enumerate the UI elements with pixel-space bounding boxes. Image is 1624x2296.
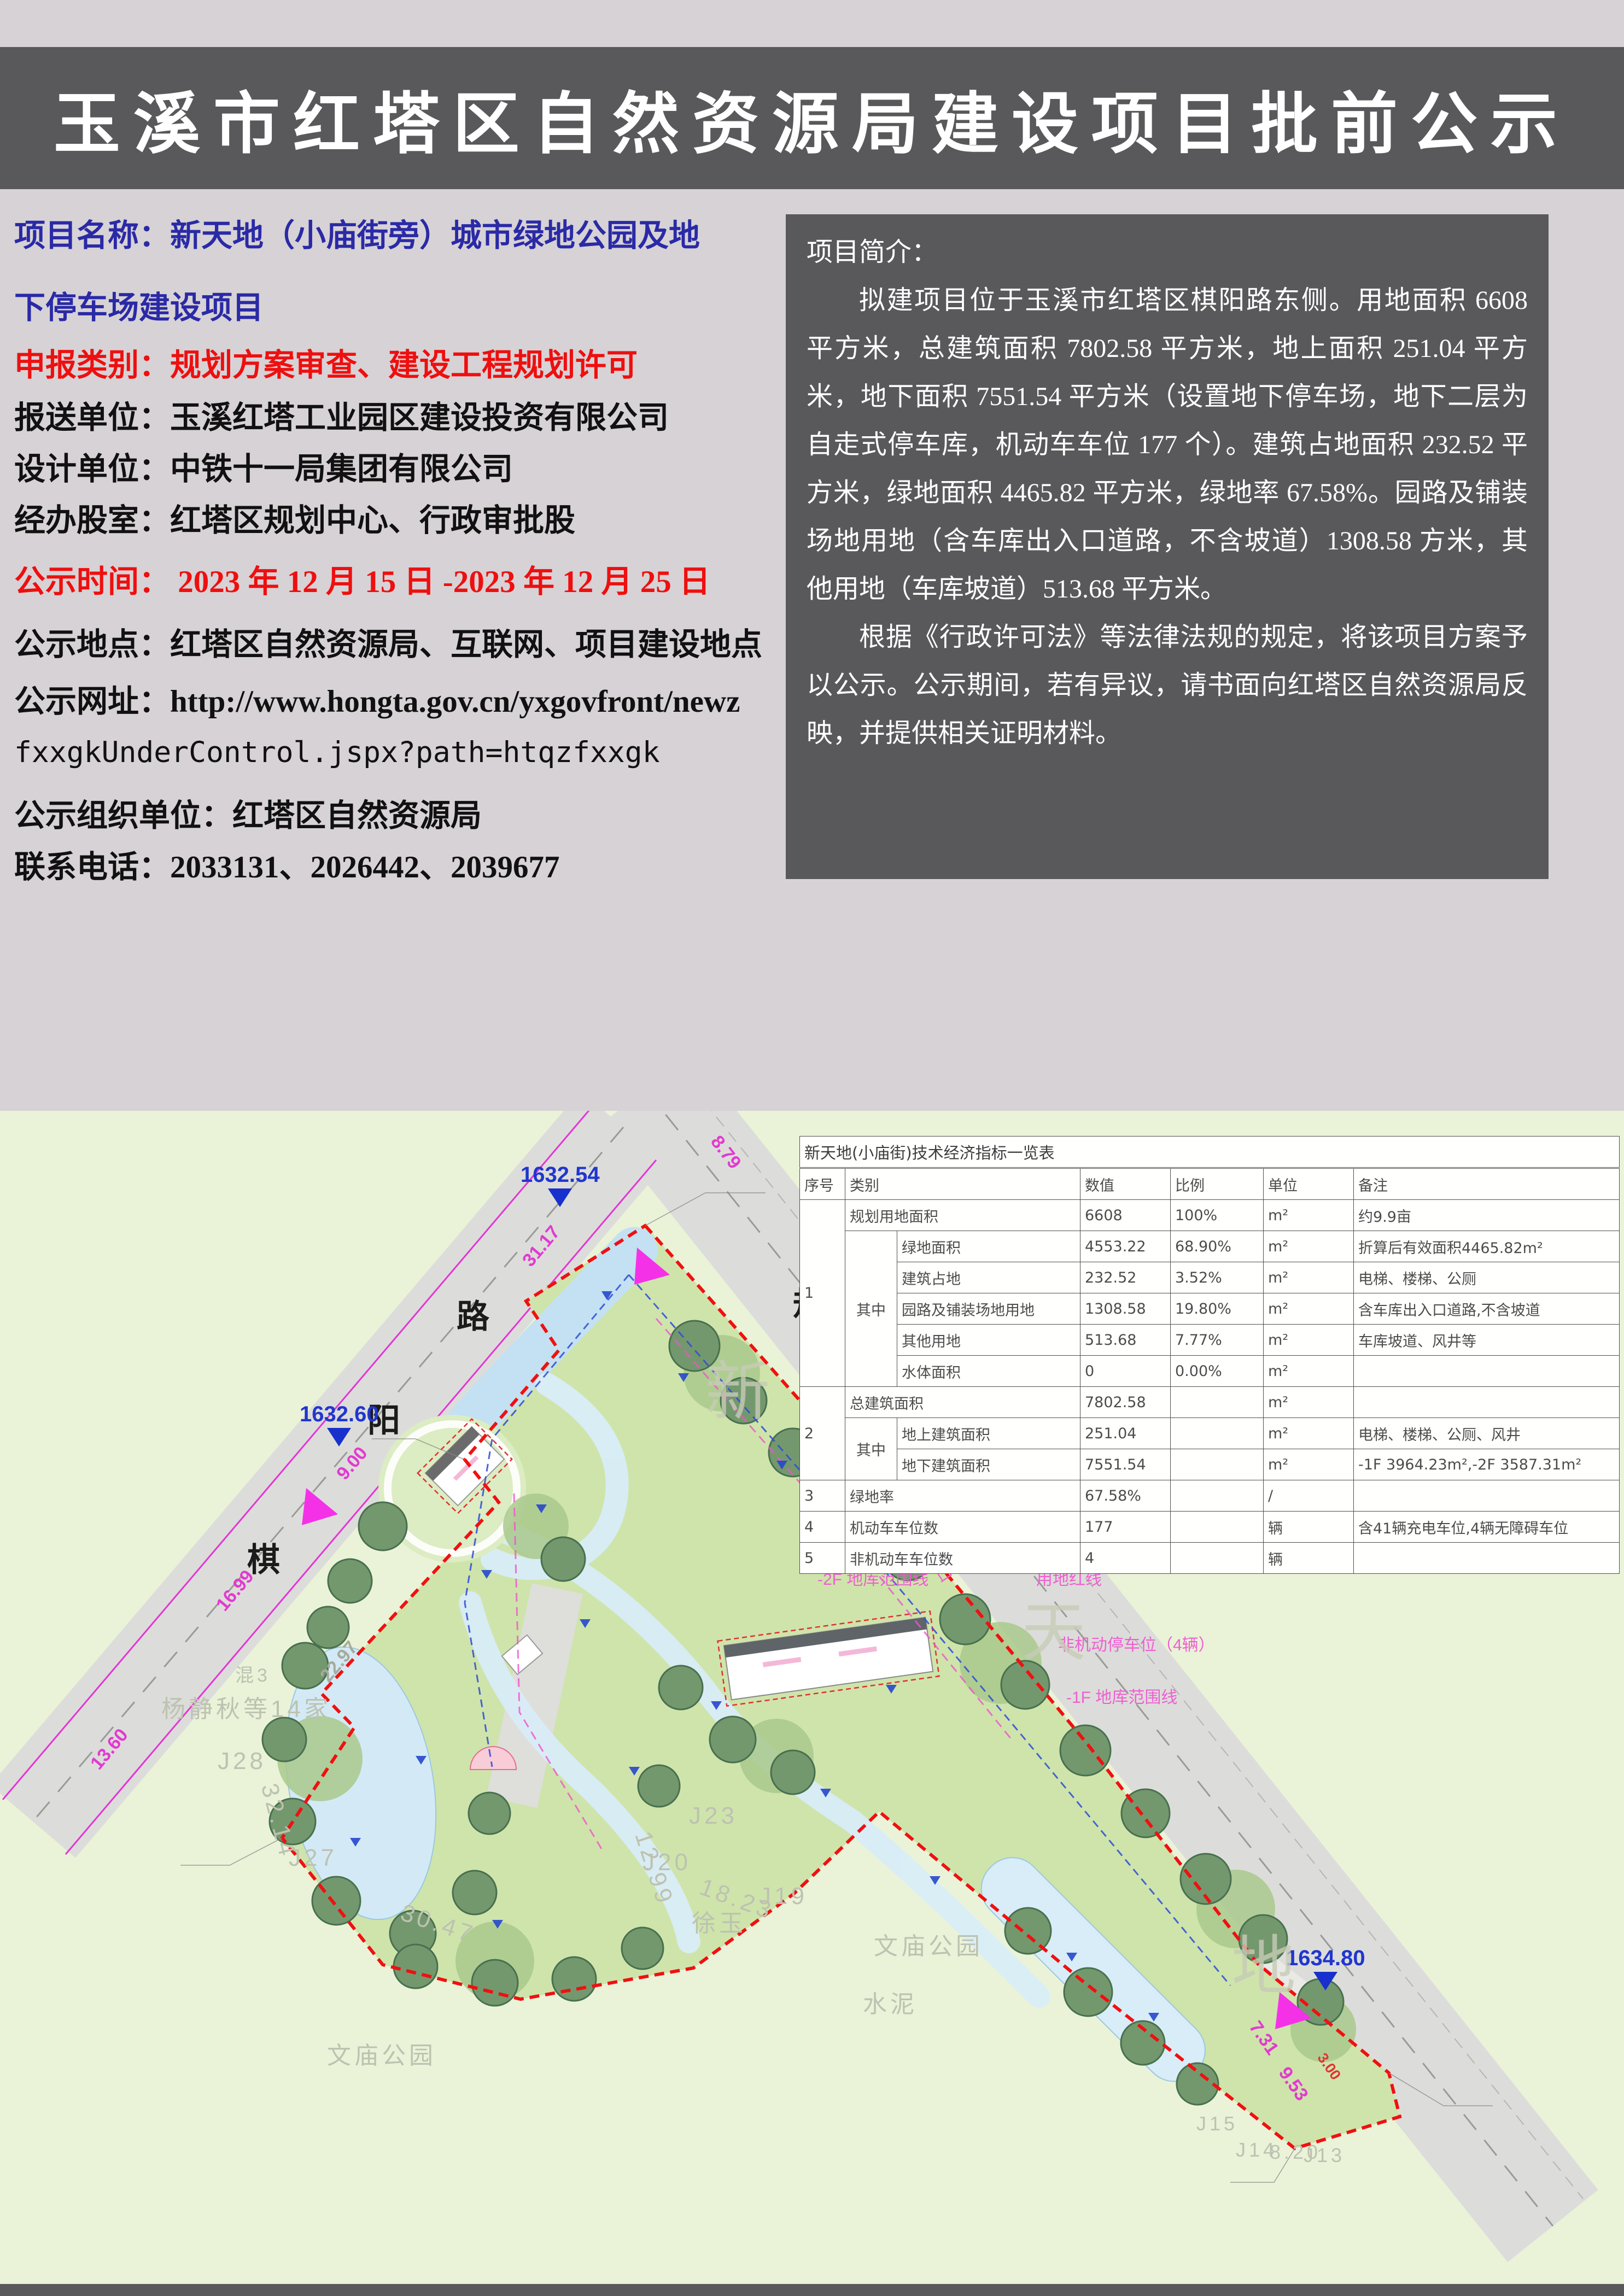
spot-elevation-icon — [580, 1619, 591, 1628]
spot-elevation-icon — [629, 1767, 640, 1776]
elevation-triangle-icon — [327, 1428, 351, 1446]
elevation-value: 1634.80 — [1286, 1946, 1365, 1971]
table-row: 4机动车车位数177辆含41辆充电车位,4辆无障碍车位 — [800, 1512, 1620, 1543]
public-notice-page: 玉溪市红塔区自然资源局建设项目批前公示 项目名称：新天地（小庙街旁）城市绿地公园… — [0, 0, 1624, 2296]
table-row: 地下建筑面积7551.54m²-1F 3964.23m²,-2F 3587.31… — [800, 1449, 1620, 1480]
table-header: 序号 — [800, 1168, 845, 1200]
spot-elevation-icon — [492, 1920, 503, 1929]
spot-elevation-icon — [678, 1373, 689, 1382]
parcel-label: J28 — [218, 1748, 266, 1775]
brief-paragraph-1: 拟建项目位于玉溪市红塔区棋阳路东侧。用地面积 6608 平方米，总建筑面积 78… — [807, 277, 1528, 613]
info-line-7: 公示时间： 2023 年 12 月 15 日 -2023 年 12 月 25 日 — [14, 557, 710, 601]
info-line-8: 公示地点：红塔区自然资源局、互联网、项目建设地点 — [14, 619, 762, 664]
info-line-12: 联系电话：2033131、2026442、2039677 — [14, 842, 560, 887]
watermark-char: 地 — [1231, 1913, 1296, 2007]
table-row: 建筑占地232.523.52%m²电梯、楼梯、公厕 — [800, 1262, 1620, 1293]
info-line-6: 经办股室：红塔区规划中心、行政审批股 — [14, 495, 575, 540]
parcel-label: J13 — [1304, 2144, 1345, 2167]
spot-elevation-icon — [416, 1756, 427, 1765]
info-line-5: 设计单位：中铁十一局集团有限公司 — [14, 444, 513, 489]
table-row: 其他用地513.687.77%m²车库坡道、风井等 — [800, 1325, 1620, 1356]
annotation-label: -1F 地库范围线 — [1066, 1684, 1177, 1708]
table-row: 1规划用地面积6608100%m²约9.9亩 — [800, 1200, 1620, 1231]
parcel-label: 徐玉 — [692, 1903, 746, 1938]
brief-paragraph-2: 根据《行政许可法》等法律法规的规定，将该项目方案予以公示。公示期间，若有异议，请… — [807, 613, 1528, 758]
watermark-char: 天 — [1021, 1580, 1086, 1673]
road-name-char: 路 — [457, 1290, 489, 1338]
elevation-value: 1632.60 — [300, 1402, 379, 1427]
table-header: 单位 — [1264, 1168, 1354, 1200]
bottom-band — [0, 2284, 1624, 2296]
info-line-9[interactable]: 公示网址：http://www.hongta.gov.cn/yxgovfront… — [14, 676, 740, 721]
parcel-label: J15 — [1196, 2112, 1238, 2135]
spot-elevation-icon — [1066, 1953, 1077, 1961]
table-row: 3绿地率67.58%/ — [800, 1480, 1620, 1512]
table-header: 数值 — [1080, 1168, 1171, 1200]
info-line-4: 报送单位：玉溪红塔工业园区建设投资有限公司 — [14, 393, 669, 437]
indicator-table: 新天地(小庙街)技术经济指标一览表序号类别数值比例单位备注1规划用地面积6608… — [799, 1136, 1620, 1574]
info-line-10: fxxgkUnderControl.jspx?path=htqzfxxgk — [14, 736, 660, 769]
elevation-value: 1632.54 — [521, 1163, 600, 1187]
spot-elevation-icon — [776, 1461, 787, 1469]
elevation-marker: 1632.60 — [300, 1402, 379, 1446]
spot-elevation-icon — [820, 1789, 831, 1797]
spot-elevation-icon — [930, 1876, 940, 1885]
parcel-label: 文庙公园 — [327, 2036, 436, 2071]
info-line-3: 申报类别：规划方案审查、建设工程规划许可 — [14, 340, 638, 385]
spot-elevation-icon — [1148, 2013, 1159, 2022]
project-brief-box: 项目简介： 拟建项目位于玉溪市红塔区棋阳路东侧。用地面积 6608 平方米，总建… — [786, 214, 1549, 879]
table-title: 新天地(小庙街)技术经济指标一览表 — [800, 1137, 1620, 1168]
parcel-label: J20 — [642, 1849, 691, 1876]
road-name-char: 棋 — [247, 1533, 280, 1581]
table-row: 水体面积00.00%m² — [800, 1356, 1620, 1387]
table-row: 其中地上建筑面积251.04m²电梯、楼梯、公厕、风井 — [800, 1418, 1620, 1449]
parcel-label: J23 — [689, 1802, 738, 1830]
spot-elevation-icon — [601, 1291, 612, 1300]
site-plan-map: 路阳棋规划道路1632.541632.601633.601634.8031.17… — [0, 1111, 1624, 2284]
elevation-triangle-icon — [1313, 1972, 1337, 1990]
table-row: 2总建筑面积7802.58m² — [800, 1387, 1620, 1418]
watermark-char: 新 — [705, 1339, 770, 1433]
spot-elevation-icon — [350, 1838, 361, 1847]
spot-elevation-icon — [536, 1504, 547, 1513]
spot-elevation-icon — [886, 1685, 897, 1694]
spot-elevation-icon — [711, 1701, 722, 1710]
info-line-1: 项目名称：新天地（小庙街旁）城市绿地公园及地 — [14, 210, 700, 255]
table-header: 类别 — [845, 1168, 1080, 1200]
info-line-11: 公示组织单位：红塔区自然资源局 — [14, 790, 482, 835]
table-row: 5非机动车车位数4辆 — [800, 1543, 1620, 1574]
parcel-label: 混3 — [235, 1660, 271, 1687]
info-line-2: 下停车场建设项目 — [14, 283, 264, 327]
elevation-triangle-icon — [548, 1188, 572, 1207]
table-header: 比例 — [1171, 1168, 1264, 1200]
parcel-label: 文庙公园 — [874, 1926, 983, 1961]
spot-elevation-icon — [481, 1570, 492, 1579]
table-row: 园路及铺装场地用地1308.5819.80%m²含车库出入口道路,不含坡道 — [800, 1293, 1620, 1325]
parcel-label: 水泥 — [863, 1984, 918, 2019]
table-header: 备注 — [1354, 1168, 1620, 1200]
elevation-marker: 1632.54 — [521, 1163, 600, 1207]
elevation-marker: 1634.80 — [1286, 1946, 1365, 1990]
parcel-label: 杨静秋等14家 — [161, 1689, 331, 1724]
table-row: 其中绿地面积4553.2268.90%m²折算后有效面积4465.82m² — [800, 1231, 1620, 1262]
info-column: 项目名称：新天地（小庙街旁）城市绿地公园及地下停车场建设项目申报类别：规划方案审… — [0, 0, 804, 1110]
parcel-label: J19 — [759, 1883, 808, 1910]
brief-heading: 项目简介： — [807, 229, 1528, 277]
